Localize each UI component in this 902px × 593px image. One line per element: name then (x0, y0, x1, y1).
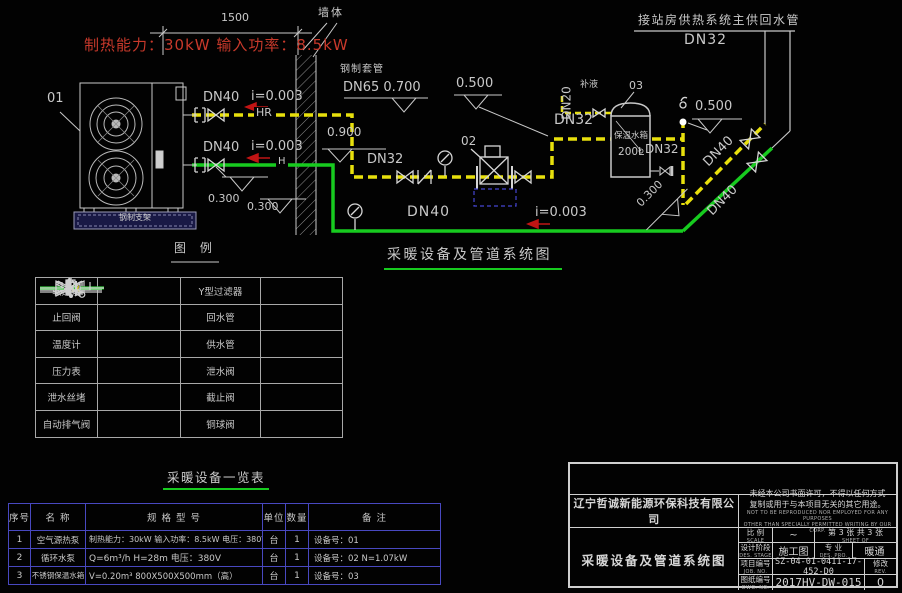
table-cell: 循环水泵 (31, 549, 86, 567)
table-cell: 台 (263, 531, 286, 549)
station-main-note: 接站房供热系统主供回水管 (638, 14, 800, 27)
drawing-number-label: 图纸编号 DWG. NO. (738, 574, 772, 590)
table-cell: 设备号：01 (309, 531, 441, 549)
equipment-table: 序号 名 称 规 格 型 号 单位 数量 备 注 1 空气源热泵 制热能力：30… (8, 503, 441, 585)
table-cell: 制热能力：30kW 输入功率：8.5kW 电压：380V (86, 531, 263, 549)
pressure-gauge-icon (98, 358, 181, 385)
col-header: 名 称 (31, 504, 86, 531)
job-number-label: 项目编号 JOB. NO. (738, 558, 772, 574)
pump-tag: 02 (461, 135, 476, 148)
drain-plug-icon (98, 384, 181, 411)
elevation-0300-a: 0.300 (208, 193, 240, 205)
rev-label-cn: 修改 (873, 558, 888, 569)
h-mark: H (276, 156, 288, 167)
revision-label: 修改 REV. (864, 558, 896, 574)
station-main-dn: DN32 (684, 33, 727, 48)
drawing-number-value: 2017HV-DW-015 (772, 574, 864, 590)
disclaimer-cn1: 未经本公司书面许可，不得以任何方式 (750, 488, 886, 499)
legend-label: 泄水丝堵 (36, 384, 98, 411)
drawing-title-text: 采暖设备及管道系统图 (581, 550, 726, 569)
legend-label: 回水管 (181, 305, 261, 332)
legend-label: 压力表 (36, 358, 98, 385)
elevation-0500-right: 0.500 (695, 100, 732, 114)
disclaimer-cn2: 复制或用于与本项目无关的其它用途。 (750, 499, 886, 510)
thermometer-icon (98, 331, 181, 358)
scale-label-cn: 比 例 (747, 527, 764, 538)
elevation-0300-b: 0.300 (247, 201, 279, 213)
capacity-note: 制热能力：30kW 输入功率：8.5kW (84, 37, 349, 54)
legend-label: 截止阀 (181, 384, 261, 411)
gate-valve-small (593, 109, 605, 117)
base-label: 钢制支架 (74, 214, 196, 223)
table-cell: 2 (9, 549, 31, 567)
col-header: 数量 (286, 504, 309, 531)
dn32-tank-inlet: DN32 (554, 113, 593, 128)
supply-dn40: DN40 (203, 141, 239, 155)
table-cell: 1 (286, 531, 309, 549)
bottom-dn40: DN40 (407, 205, 450, 220)
table-cell: 1 (286, 567, 309, 585)
fan-top (90, 98, 142, 150)
ball-valve-icon (261, 411, 343, 438)
dwg-label-cn: 图纸编号 (741, 574, 771, 585)
dn32-tank-outlet: DN32 (645, 143, 679, 156)
company-name-text: 辽宁哲诚新能源环保科技有限公司 (570, 495, 738, 527)
auto-air-vent (680, 97, 688, 125)
table-cell: 1 (9, 531, 31, 549)
sheet-text: 第 3 张 共 3 张 (828, 527, 883, 538)
fan-bottom (89, 151, 143, 205)
pressure-gauge-bottom (348, 204, 362, 230)
station-risers (634, 31, 795, 148)
return-dn40: DN40 (203, 91, 239, 105)
flex-connector-icon (98, 278, 181, 305)
elevation-0900: 0.900 (327, 126, 361, 139)
disclaimer-en1: NOT TO BE REPRODUCED NOR EMPLOYED FOR AN… (739, 510, 896, 522)
check-valve-icon (98, 305, 181, 332)
y-strainer-icon (261, 278, 343, 305)
company-name: 辽宁哲诚新能源环保科技有限公司 (570, 494, 738, 527)
table-cell: 设备号：03 (309, 567, 441, 585)
legend-label: Y型过滤器 (181, 278, 261, 305)
heat-pump-unit (60, 83, 197, 229)
job-label-cn: 项目编号 (741, 558, 771, 569)
job-number-value: SZ-04-01-0411-17-452-D0 (772, 558, 864, 574)
table-cell: 台 (263, 549, 286, 567)
legend-table: 软连接 Y型过滤器 止回阀 回水管 HR 温度计 供水管 H 压力表 泄水阀 泄… (35, 277, 343, 438)
title-block: 辽宁哲诚新能源环保科技有限公司 未经本公司书面许可，不得以任何方式 复制或用于与… (568, 462, 898, 588)
legend-title: 图 例 (174, 242, 217, 255)
elevation-0500-mid: 0.500 (456, 77, 493, 91)
table-cell: 台 (263, 567, 286, 585)
scale-label: 比 例 SCALE (738, 527, 772, 542)
cad-drawing-canvas: 制热能力：30kW 输入功率：8.5kW 1500 墙体 钢制套管 DN65 0… (0, 0, 902, 593)
tank-drain (650, 166, 672, 176)
dwg-label-en: DWG. NO. (742, 585, 769, 591)
tank-tag: 03 (629, 80, 643, 92)
return-slope: i=0.003 (251, 90, 303, 104)
supply-slope: i=0.003 (251, 140, 303, 154)
tank-name: 保温水箱 (613, 132, 649, 141)
stop-valve-icon (261, 384, 343, 411)
scale-value-text: ~ (789, 530, 797, 541)
return-pipe-symbol: HR (261, 305, 343, 332)
hr-mark: HR (254, 107, 274, 119)
table-cell: 3 (9, 567, 31, 585)
supply-pipe-symbol: H (261, 331, 343, 358)
legend-label: 泄水阀 (181, 358, 261, 385)
col-header: 序号 (9, 504, 31, 531)
col-header: 规 格 型 号 (86, 504, 263, 531)
tank-volume: 200L (613, 147, 649, 159)
rev-value-text: 0 (877, 576, 884, 589)
equipment-table-title: 采暖设备一览表 (167, 471, 265, 485)
diagram-title-underline (384, 268, 562, 270)
auto-air-vent-icon (98, 411, 181, 438)
legend-label: 温度计 (36, 331, 98, 358)
disclaimer: 未经本公司书面许可，不得以任何方式 复制或用于与本项目无关的其它用途。 NOT … (738, 494, 896, 527)
stage-label-cn: 设计阶段 (741, 542, 771, 553)
sleeve-label: 钢制套管 (340, 64, 384, 75)
unit-tag: 01 (47, 92, 64, 106)
legend-label: 自动排气阀 (36, 411, 98, 438)
wall-label: 墙体 (318, 7, 344, 19)
sleeve-size-elevation: DN65 0.700 (343, 81, 421, 95)
table-cell: 空气源热泵 (31, 531, 86, 549)
revision-value: 0 (864, 574, 896, 590)
stage-label: 设计阶段 DES. STAGE (738, 542, 772, 558)
legend-label: 止回阀 (36, 305, 98, 332)
table-cell: V=0.20m³ 800X500X500mm（高） (86, 567, 263, 585)
table-cell: 设备号：02 N=1.07kW (309, 549, 441, 567)
diagram-title: 采暖设备及管道系统图 (387, 248, 552, 263)
drain-valve-icon (261, 358, 343, 385)
profession-value-text: 暖通 (865, 543, 885, 558)
profession-label-cn: 专 业 (825, 542, 842, 553)
table-cell: Q=6m³/h H=28m 电压：380V (86, 549, 263, 567)
makeup-label: 补液 (580, 81, 598, 91)
equipment-title-underline (163, 488, 269, 490)
legend-label: 供水管 (181, 331, 261, 358)
scale-value: ~ (772, 527, 814, 542)
table-cell: 不锈钢保温水箱 (31, 567, 86, 585)
legend-label: 铜球阀 (181, 411, 261, 438)
col-header: 备 注 (309, 504, 441, 531)
pressure-gauge (438, 151, 452, 176)
dwg-number-text: 2017HV-DW-015 (775, 576, 861, 589)
table-cell: 1 (286, 549, 309, 567)
dn32-pump-line: DN32 (367, 153, 403, 167)
drawing-title-cell: 采暖设备及管道系统图 (570, 527, 738, 590)
sheet-cell: 第 3 张 共 3 张 SHEET OF (814, 527, 896, 542)
dimension-value: 1500 (221, 12, 249, 24)
col-header: 单位 (263, 504, 286, 531)
bottom-slope: i=0.003 (535, 206, 587, 220)
